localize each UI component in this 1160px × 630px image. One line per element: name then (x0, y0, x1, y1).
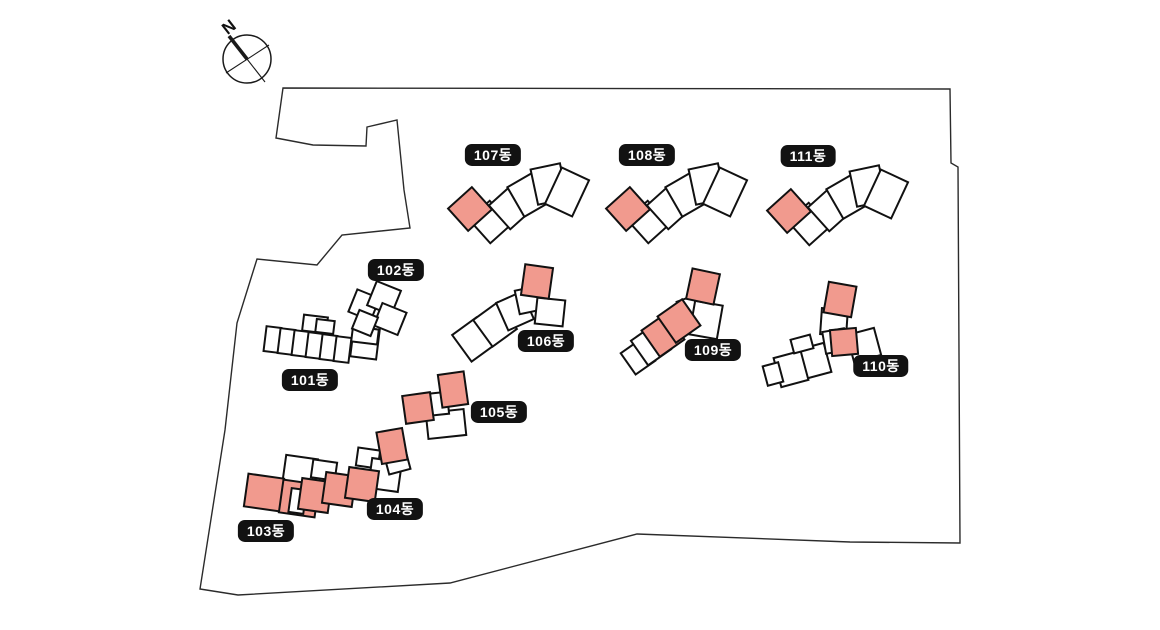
compass-needle-tail (247, 59, 265, 82)
building-107[interactable] (448, 163, 589, 243)
building-104-unit-highlighted (345, 467, 379, 502)
building-104-unit-highlighted (376, 428, 407, 464)
building-label-110[interactable]: 110동 (853, 355, 908, 377)
building-106-unit-highlighted (521, 264, 553, 299)
building-110-unit-highlighted (824, 282, 857, 317)
building-105-unit-highlighted (438, 371, 468, 407)
building-label-106[interactable]: 106동 (518, 330, 574, 352)
building-103-unit-highlighted (244, 474, 284, 512)
building-label-111[interactable]: 111동 (781, 145, 836, 167)
building-label-107[interactable]: 107동 (465, 144, 521, 166)
building-105[interactable] (402, 371, 468, 439)
building-109-unit-highlighted (686, 268, 720, 304)
building-label-108[interactable]: 108동 (619, 144, 675, 166)
building-106-unit (535, 298, 566, 327)
building-110-unit-highlighted (830, 328, 858, 356)
building-label-103[interactable]: 103동 (238, 520, 294, 542)
building-label-101[interactable]: 101동 (282, 369, 338, 391)
building-label-102[interactable]: 102동 (368, 259, 424, 281)
building-102[interactable] (348, 281, 406, 336)
buildings-layer (244, 163, 908, 517)
building-111[interactable] (767, 165, 908, 245)
building-label-109[interactable]: 109동 (685, 339, 741, 361)
building-101-unit (334, 336, 352, 363)
compass-needle-icon (229, 36, 247, 59)
building-label-105[interactable]: 105동 (471, 401, 527, 423)
compass-north-label: N (218, 16, 239, 39)
building-101-unit (315, 319, 334, 334)
site-plan-svg: N (0, 0, 1160, 630)
building-108[interactable] (606, 163, 747, 243)
building-105-unit-highlighted (402, 392, 434, 424)
building-label-104[interactable]: 104동 (367, 498, 423, 520)
site-plan-canvas: N 101동102동103동104동105동106동107동108동109동11… (0, 0, 1160, 630)
compass-icon: N (218, 16, 271, 83)
